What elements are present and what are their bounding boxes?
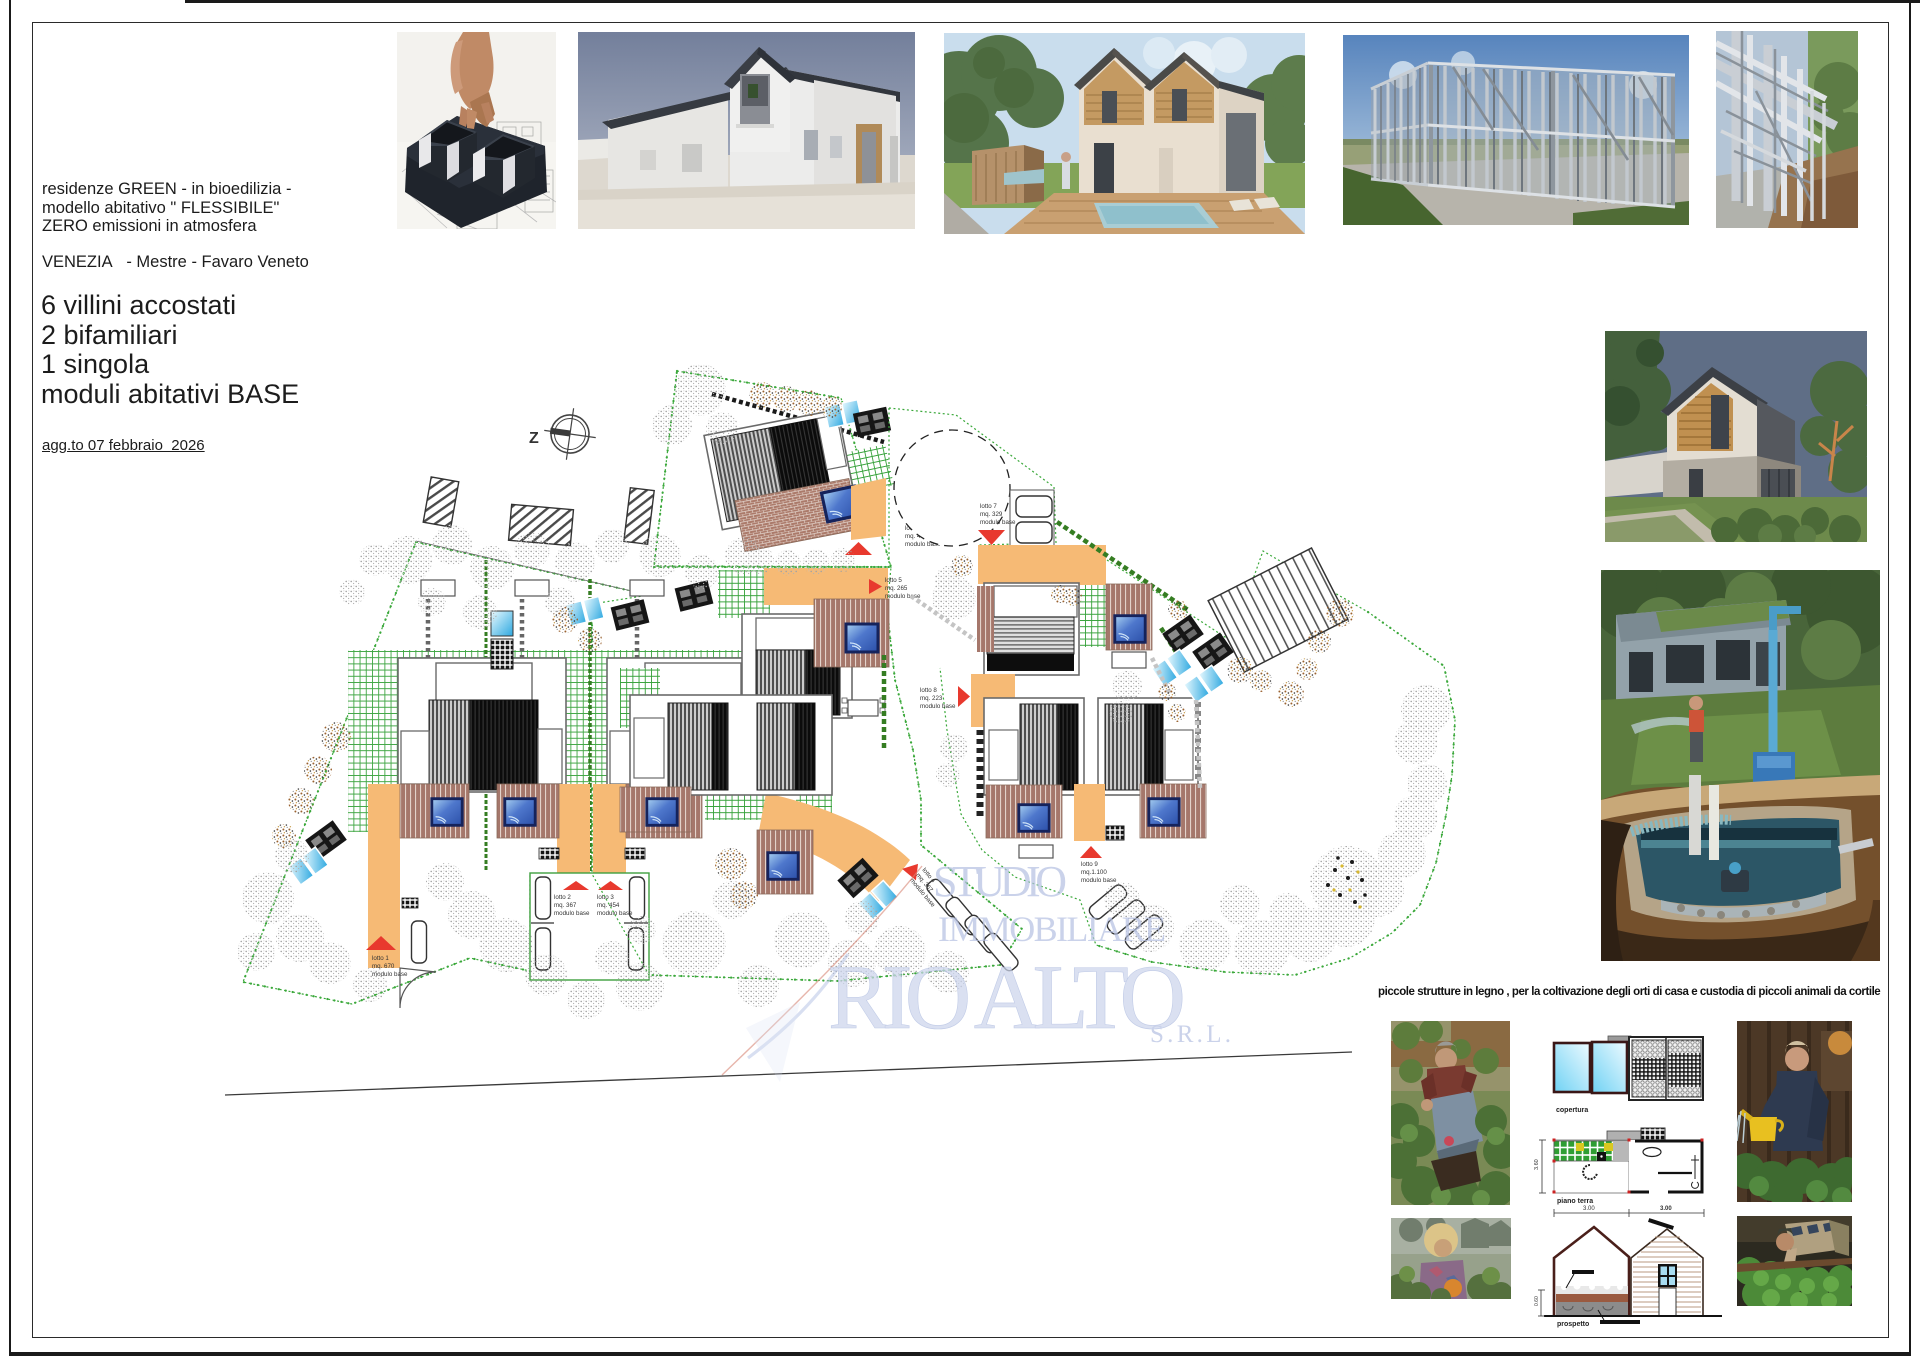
svg-text:modulo base: modulo base (885, 593, 921, 600)
svg-text:0.60: 0.60 (1534, 1296, 1540, 1306)
svg-text:mq.1.100: mq.1.100 (1081, 869, 1107, 876)
svg-text:modulo base: modulo base (980, 519, 1016, 526)
svg-text:IMMOBILIARE: IMMOBILIARE (938, 909, 1168, 949)
svg-text:mq. 367: mq. 367 (554, 902, 577, 909)
svg-text:lotto 3: lotto 3 (597, 894, 614, 901)
svg-text:lotto 8: lotto 8 (920, 687, 937, 694)
svg-text:copertura: copertura (1556, 1107, 1588, 1114)
svg-text:RIO ALTO: RIO ALTO (828, 946, 1186, 1048)
svg-text:modulo base: modulo base (554, 910, 590, 917)
svg-text:Z: Z (529, 430, 539, 447)
svg-text:lotto 5: lotto 5 (885, 577, 902, 584)
svg-text:3.00: 3.00 (1660, 1206, 1672, 1212)
svg-text:piano terra: piano terra (1557, 1198, 1593, 1205)
svg-text:lotto 9: lotto 9 (1081, 861, 1098, 868)
svg-text:mq. 265: mq. 265 (885, 585, 908, 592)
svg-text:lotto 2: lotto 2 (554, 894, 571, 901)
svg-text:3.00: 3.00 (1583, 1206, 1595, 1212)
svg-text:prospetto: prospetto (1557, 1321, 1589, 1328)
svg-text:modulo base: modulo base (920, 703, 956, 710)
svg-text:modulo base: modulo base (1081, 877, 1117, 884)
svg-text:mq. 223: mq. 223 (920, 695, 943, 702)
svg-text:S.R.L.: S.R.L. (1150, 1021, 1236, 1048)
svg-text:3.60: 3.60 (1534, 1159, 1540, 1170)
svg-text:lotto 1: lotto 1 (372, 955, 389, 962)
svg-text:mq. 329: mq. 329 (980, 511, 1003, 518)
svg-text:lotto 7: lotto 7 (980, 503, 997, 510)
svg-text:STUDIO: STUDIO (933, 857, 1071, 906)
